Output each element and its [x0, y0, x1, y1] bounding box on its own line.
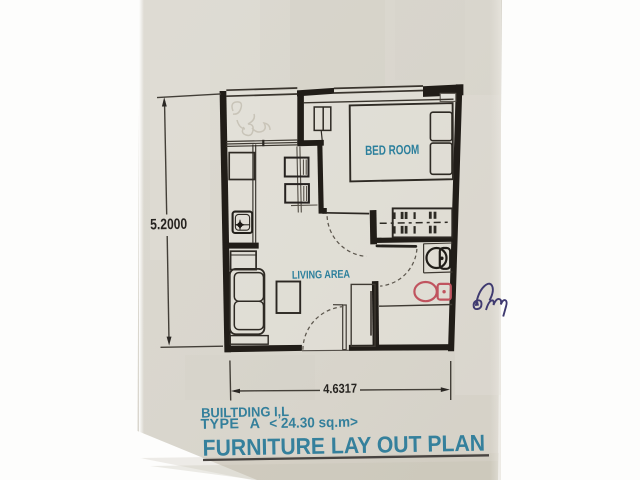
- svg-text:TYPE: TYPE: [200, 416, 239, 433]
- svg-text:< 24.30 sq.m>: < 24.30 sq.m>: [269, 413, 358, 431]
- svg-text:5.2000: 5.2000: [150, 215, 188, 232]
- svg-text:LIVING AREA: LIVING AREA: [292, 269, 351, 282]
- svg-text:A: A: [250, 416, 261, 432]
- svg-text:BED ROOM: BED ROOM: [365, 142, 419, 158]
- svg-text:4.6317: 4.6317: [323, 381, 357, 397]
